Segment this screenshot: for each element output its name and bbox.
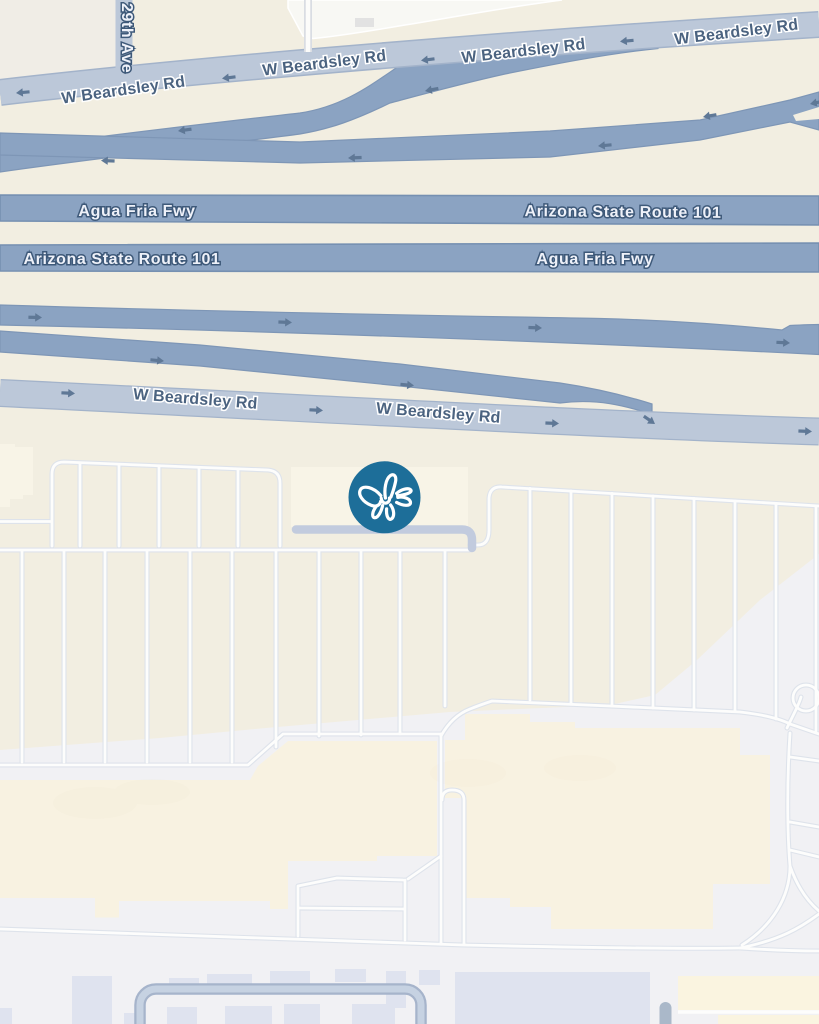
svg-text:Arizona State Route 101: Arizona State Route 101 [524, 203, 721, 222]
svg-text:Agua Fria Fwy: Agua Fria Fwy [78, 203, 195, 220]
svg-text:29th Ave: 29th Ave [118, 3, 135, 73]
svg-text:Agua Fria Fwy: Agua Fria Fwy [536, 251, 653, 268]
svg-text:Arizona State Route 101: Arizona State Route 101 [24, 251, 221, 268]
